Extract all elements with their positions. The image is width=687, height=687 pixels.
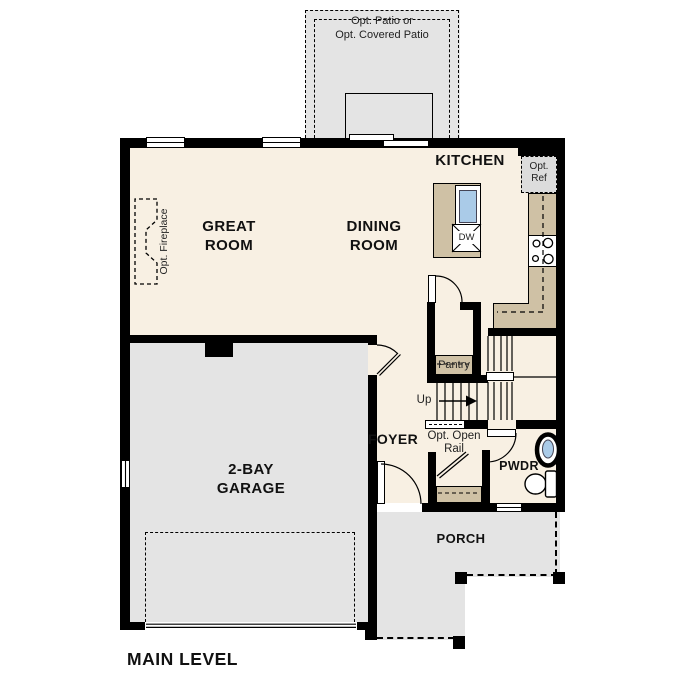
slider-door-right-panel bbox=[383, 140, 429, 147]
great-room-label-line1: GREAT bbox=[184, 217, 274, 236]
wall-pwdr-top-right bbox=[516, 420, 565, 429]
patio-label-line1: Opt. Patio or bbox=[312, 15, 452, 29]
garage-label: 2-BAY GARAGE bbox=[205, 460, 297, 498]
porch-edge-right bbox=[555, 512, 557, 575]
fireplace-label: Opt. Fireplace bbox=[158, 199, 171, 284]
front-door-panel bbox=[377, 461, 385, 504]
patio-label: Opt. Patio or Opt. Covered Patio bbox=[312, 15, 452, 42]
dining-room-label-line2: ROOM bbox=[329, 236, 419, 255]
stair-rail-dashes bbox=[429, 424, 462, 425]
open-rail-label-line2: Rail bbox=[424, 443, 484, 456]
wall-kitchen-bottom bbox=[488, 328, 565, 336]
opt-ref-label: Opt. Ref bbox=[521, 161, 557, 184]
front-door-opening bbox=[377, 503, 422, 512]
window-garage bbox=[121, 460, 130, 488]
pwdr-door-opening bbox=[488, 420, 516, 429]
pantry-label: Pantry bbox=[431, 359, 477, 372]
pwdr-door-panel bbox=[487, 429, 516, 437]
window-great-room-2 bbox=[262, 137, 301, 148]
island-sink-basin bbox=[459, 190, 477, 223]
patio-label-line2: Opt. Covered Patio bbox=[312, 29, 452, 43]
garage-pilaster bbox=[205, 343, 233, 357]
great-room-label: GREAT ROOM bbox=[184, 217, 274, 255]
wall-garage-corner-ext bbox=[365, 622, 377, 640]
wall-left bbox=[120, 138, 130, 630]
pwdr-label: PWDR bbox=[496, 457, 542, 476]
open-rail-label: Opt. Open Rail bbox=[424, 430, 484, 455]
porch-edge-lower-bottom bbox=[377, 637, 454, 639]
opt-ref-label-line1: Opt. bbox=[521, 161, 557, 173]
foyer-label: FOYER bbox=[362, 430, 424, 449]
wall-pantry-top-right bbox=[460, 302, 481, 310]
porch-floor-lower bbox=[377, 577, 465, 640]
floor-plan: Opt. Patio or Opt. Covered Patio KITCHEN… bbox=[0, 0, 687, 687]
pantry-door-panel bbox=[428, 275, 436, 303]
wall-pwdr-left-stub bbox=[465, 420, 488, 429]
garage-label-line1: 2-BAY bbox=[205, 460, 297, 479]
patio-landing bbox=[345, 93, 433, 138]
kitchen-label: KITCHEN bbox=[425, 151, 515, 170]
dishwasher-label: DW bbox=[457, 232, 476, 245]
dining-room-label-line1: DINING bbox=[329, 217, 419, 236]
wall-garage-right-top bbox=[368, 335, 377, 345]
closet-shelf bbox=[436, 486, 482, 503]
great-room-label-line2: ROOM bbox=[184, 236, 274, 255]
window-great-room-1 bbox=[146, 137, 185, 148]
porch-post-sw bbox=[453, 636, 465, 649]
porch-label: PORCH bbox=[432, 529, 490, 548]
stairs-up-label: Up bbox=[412, 394, 436, 407]
porch-post-ne bbox=[553, 572, 565, 584]
garage-entry-opening bbox=[368, 345, 377, 375]
stair-landing-bar bbox=[486, 372, 514, 381]
wall-garage-right bbox=[368, 375, 377, 630]
porch-edge-upper-bottom bbox=[467, 574, 557, 576]
opt-ref-label-line2: Ref bbox=[521, 173, 557, 185]
main-level-title: MAIN LEVEL bbox=[127, 650, 287, 669]
window-front bbox=[496, 503, 522, 512]
porch-post-mid bbox=[455, 572, 467, 584]
wall-top bbox=[120, 138, 565, 148]
open-rail-label-line1: Opt. Open bbox=[424, 430, 484, 443]
garage-door-opening bbox=[145, 622, 357, 631]
wall-garage-top bbox=[120, 335, 377, 343]
garage-label-line2: GARAGE bbox=[205, 479, 297, 498]
wall-pantry-bottom bbox=[427, 375, 488, 383]
kitchen-counter-corner bbox=[493, 303, 529, 330]
garage-pad-outline bbox=[145, 532, 355, 622]
wall-closet-right bbox=[482, 450, 490, 512]
wall-closet-left bbox=[428, 452, 436, 504]
stove-box bbox=[528, 235, 557, 267]
dining-room-label: DINING ROOM bbox=[329, 217, 419, 255]
